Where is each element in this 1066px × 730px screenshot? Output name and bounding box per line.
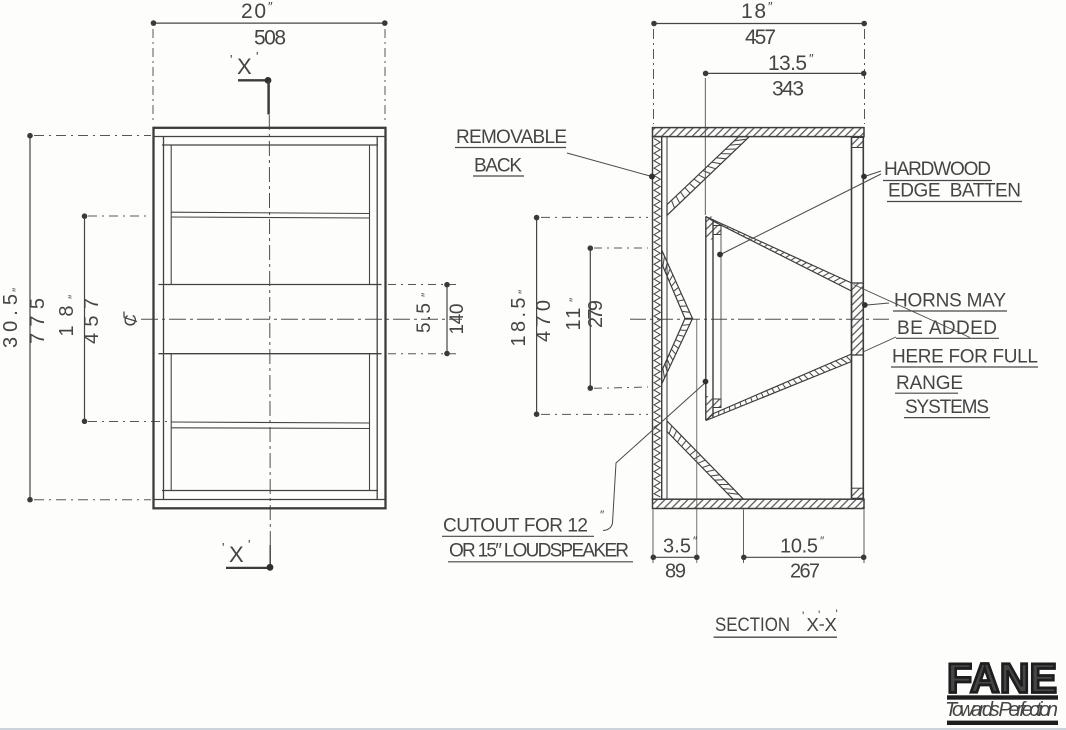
svg-text:13.5: 13.5 bbox=[768, 52, 807, 75]
svg-text:343: 343 bbox=[772, 78, 805, 101]
svg-text:″: ″ bbox=[768, 0, 773, 14]
svg-text:775: 775 bbox=[27, 298, 49, 344]
svg-text:EDGE BATTEN: EDGE BATTEN bbox=[888, 181, 1021, 202]
svg-text:SECTION: SECTION bbox=[715, 615, 790, 636]
svg-text:BE ADDED: BE ADDED bbox=[897, 318, 997, 339]
svg-text:508: 508 bbox=[254, 27, 287, 50]
svg-text:RANGE: RANGE bbox=[896, 373, 963, 394]
svg-text:X: X bbox=[237, 54, 252, 79]
svg-text:': ' bbox=[818, 608, 820, 622]
svg-text:CUTOUT FOR 12: CUTOUT FOR 12 bbox=[443, 516, 588, 537]
svg-text:470: 470 bbox=[533, 300, 555, 342]
svg-text:': ' bbox=[248, 537, 250, 552]
svg-text:Towards Perfection: Towards Perfection bbox=[945, 699, 1058, 721]
svg-text:SYSTEMS: SYSTEMS bbox=[905, 397, 989, 418]
svg-text:X: X bbox=[807, 614, 819, 635]
svg-text:': ' bbox=[802, 609, 804, 623]
svg-text:FANE: FANE bbox=[947, 655, 1057, 702]
svg-text:X: X bbox=[229, 542, 244, 567]
svg-text:OR 15″ LOUDSPEAKER: OR 15″ LOUDSPEAKER bbox=[449, 541, 629, 562]
svg-text:': ' bbox=[222, 540, 224, 555]
svg-text:': ' bbox=[836, 607, 838, 621]
svg-text:18: 18 bbox=[741, 0, 766, 23]
svg-text:10.5: 10.5 bbox=[780, 536, 818, 558]
svg-text:REMOVABLE: REMOVABLE bbox=[456, 127, 567, 148]
svg-text:457: 457 bbox=[745, 26, 777, 49]
svg-text:18.5: 18.5 bbox=[508, 298, 530, 347]
svg-text:HERE FOR FULL: HERE FOR FULL bbox=[892, 347, 1038, 368]
svg-text:140: 140 bbox=[447, 304, 468, 335]
svg-text:': ' bbox=[230, 52, 232, 67]
svg-text:279: 279 bbox=[585, 300, 607, 328]
svg-text:″: ″ bbox=[809, 51, 814, 66]
svg-text:457: 457 bbox=[81, 298, 103, 344]
svg-text:267: 267 bbox=[790, 561, 821, 583]
svg-text:': ' bbox=[256, 49, 258, 64]
svg-text:″: ″ bbox=[268, 0, 273, 14]
svg-text:20: 20 bbox=[241, 0, 266, 23]
svg-text:11: 11 bbox=[563, 308, 585, 331]
svg-text:89: 89 bbox=[665, 561, 686, 583]
svg-text:BACK: BACK bbox=[474, 156, 522, 177]
svg-text:30.5: 30.5 bbox=[0, 294, 22, 348]
svg-text:5.5: 5.5 bbox=[414, 303, 435, 333]
svg-text:3.5: 3.5 bbox=[663, 536, 691, 558]
svg-text:HORNS MAY: HORNS MAY bbox=[894, 291, 1006, 312]
svg-text:HARDWOOD: HARDWOOD bbox=[884, 159, 991, 180]
